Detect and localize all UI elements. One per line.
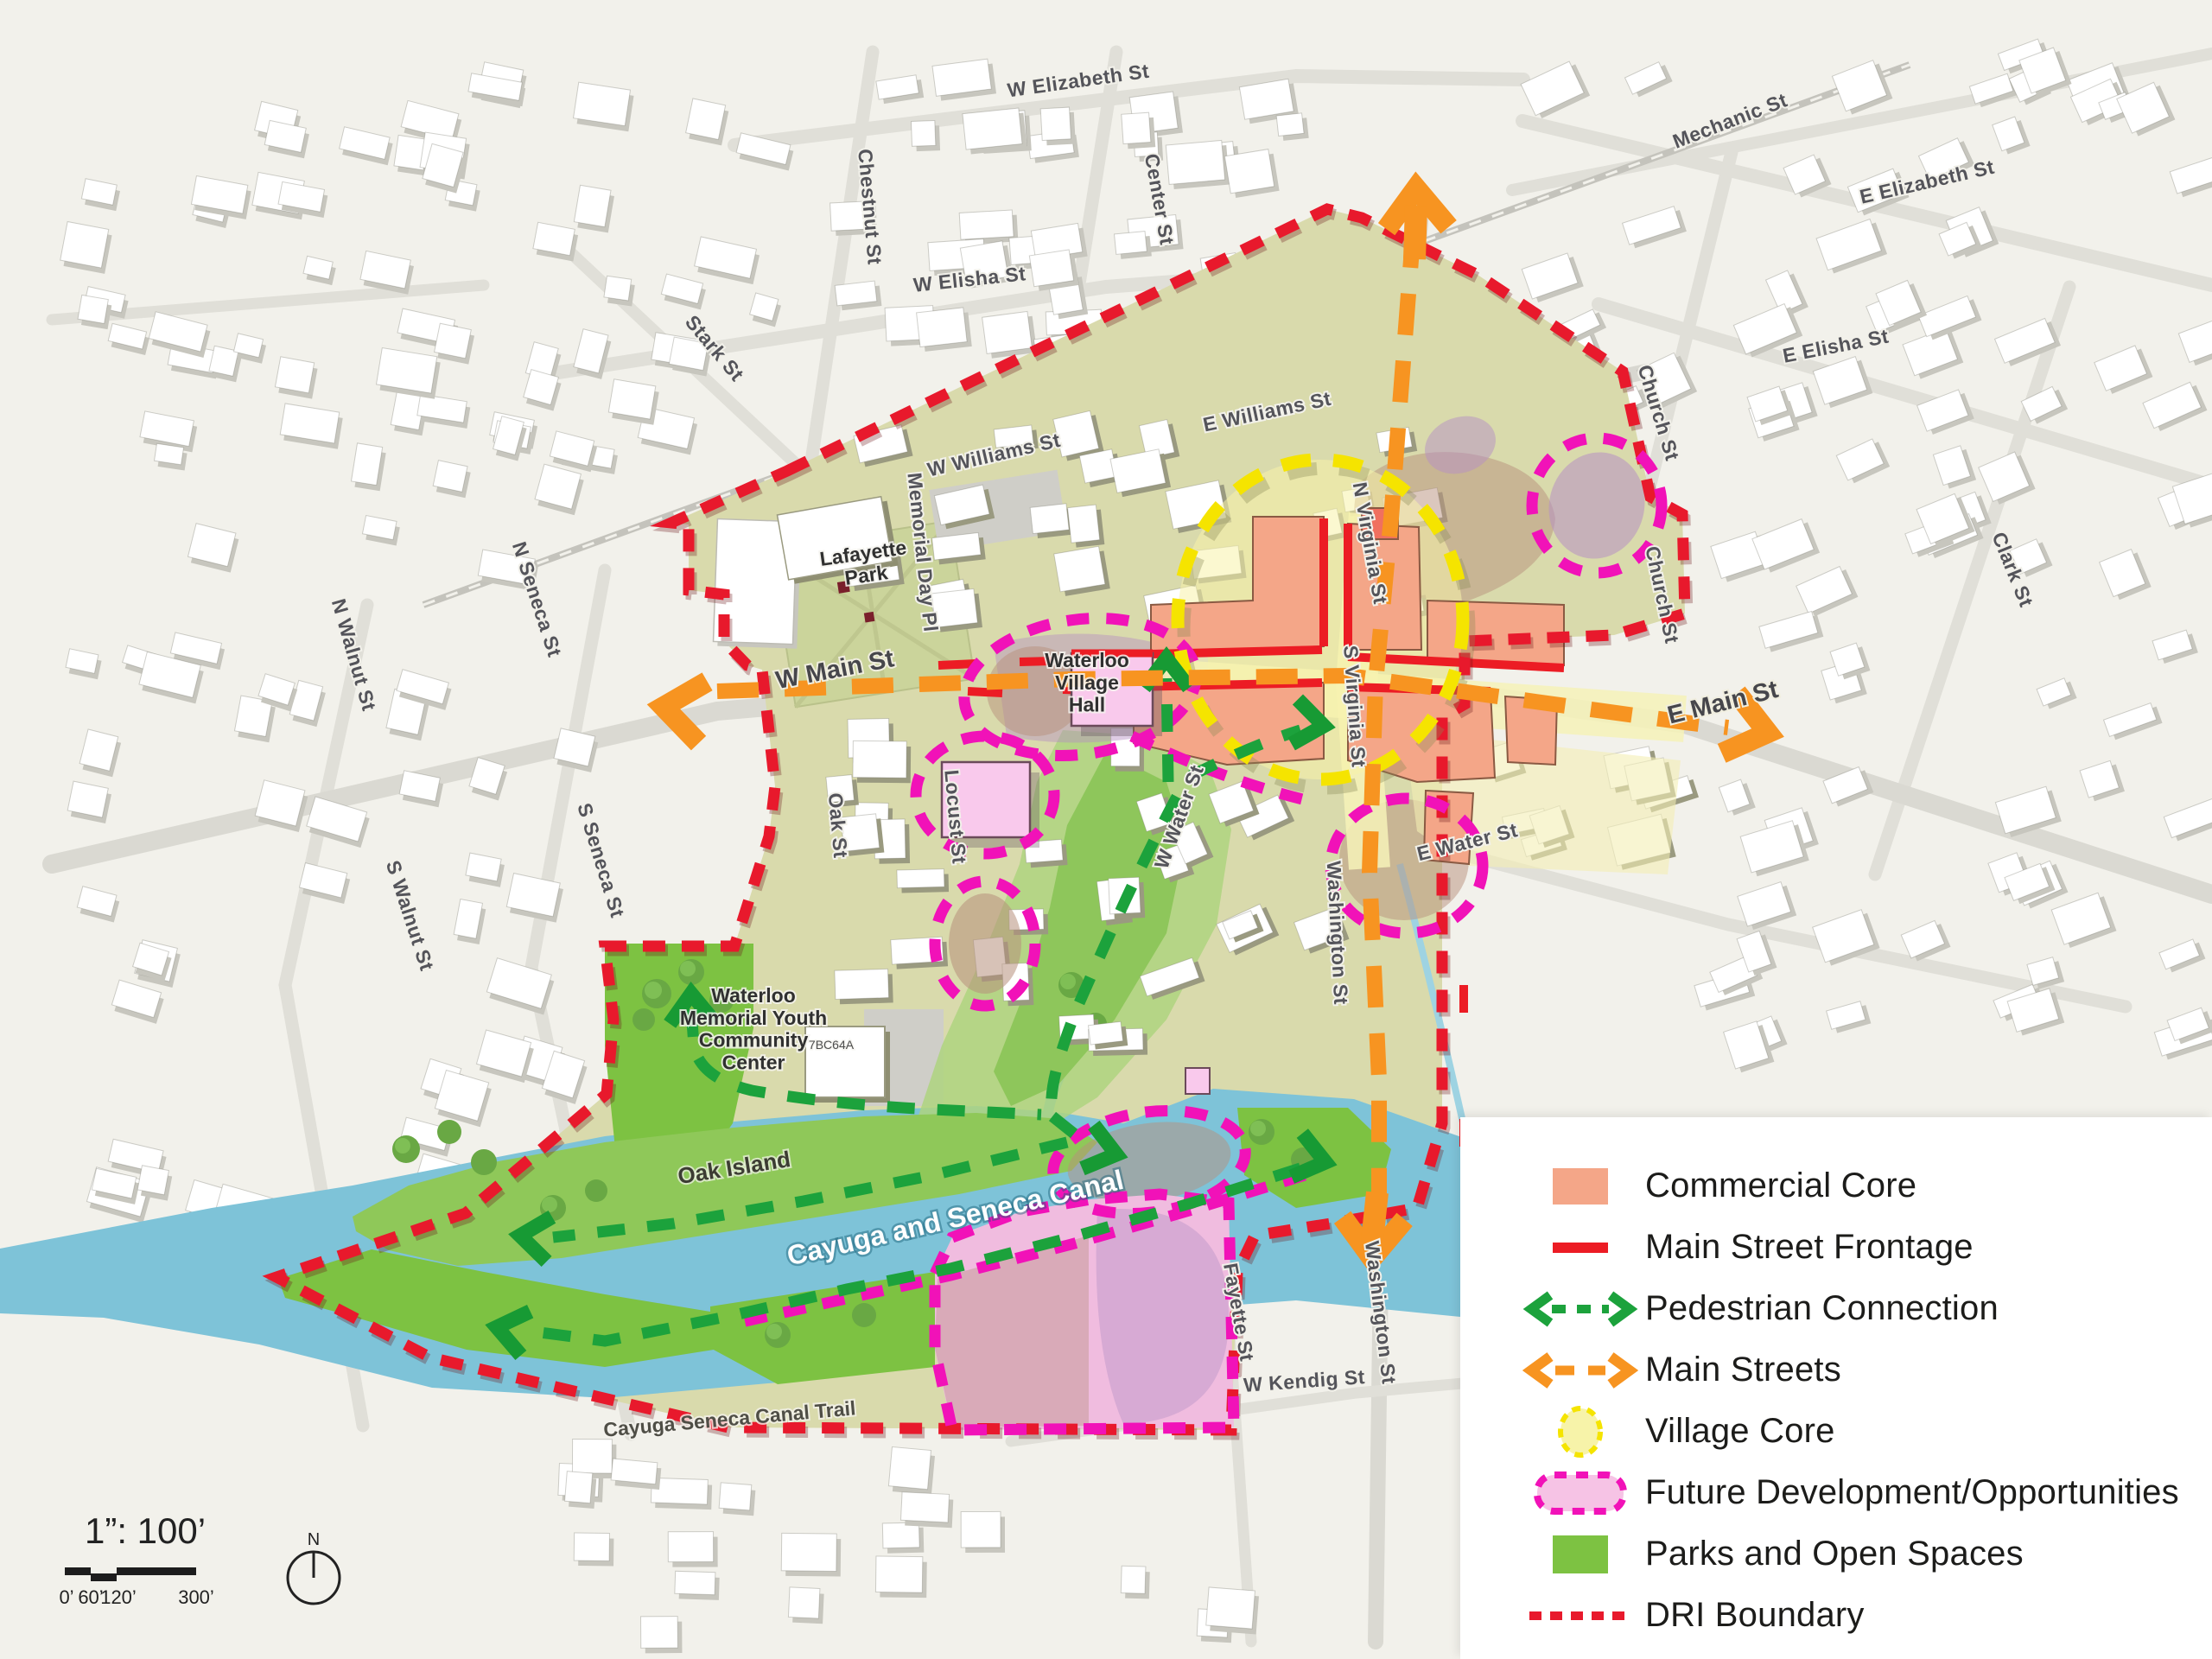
building [932,532,986,565]
legend-label: Parks and Open Spaces [1645,1535,2024,1573]
legend-label: Village Core [1645,1412,1835,1451]
building [603,276,636,306]
building [154,443,188,470]
building [675,1571,720,1600]
legend-item-parks: Parks and Open Spaces [1516,1523,2212,1585]
legend-label: Main Streets [1645,1351,1841,1389]
scale-bar: 1”: 100’ 0’ 60’ 120’ 300’ N [60,1503,432,1633]
building [1029,249,1078,291]
building [1205,1587,1259,1634]
legend-item-commercial-core: Commercial Core [1516,1155,2212,1217]
north-arrow: N [276,1529,354,1616]
main-street-arrow-swatch [1516,1351,1645,1390]
building [853,741,911,783]
building [897,869,949,893]
future-development-swatch [1516,1465,1645,1522]
building [573,185,615,232]
scale-ratio: 1”: 100’ [85,1510,206,1552]
building [641,1617,683,1654]
building [1122,112,1155,149]
building [77,295,112,329]
scale-bar-graphic [65,1567,257,1581]
legend-label: Main Street Frontage [1645,1228,1974,1267]
legend-label: DRI Boundary [1645,1596,1865,1635]
building [982,311,1038,359]
building [835,281,881,311]
building [274,357,318,399]
building [1054,546,1110,597]
legend-label: Future Development/Opportunities [1645,1473,2179,1512]
village-core-swatch [1516,1404,1645,1459]
planning-map-page: W Elizabeth StMechanic StE Elizabeth StW… [0,0,2212,1659]
legend-label: Commercial Core [1645,1166,1916,1205]
legend-item-main-street-frontage: Main Street Frontage [1516,1217,2212,1278]
legend: Commercial Core Main Street Frontage Ped… [1460,1117,2212,1659]
legend-item-future-development: Future Development/Opportunities [1516,1462,2212,1523]
building [961,1511,1005,1553]
building [684,99,729,145]
building [1040,107,1076,146]
legend-item-pedestrian-connection: Pedestrian Connection [1516,1278,2212,1339]
building [564,1471,597,1509]
building [875,1556,926,1598]
legend-label: Pedestrian Connection [1645,1289,1999,1328]
building [781,1533,841,1576]
building [900,1492,953,1528]
building [1068,505,1105,549]
scale-ticks: 0’ 60’ 120’ 300’ [65,1586,272,1609]
pedestrian-arrow-swatch [1516,1289,1645,1329]
building [607,379,659,425]
scale-tick: 300’ [178,1586,214,1609]
building [433,323,475,364]
legend-item-village-core: Village Core [1516,1401,2212,1462]
scale-tick: 120’ [100,1586,137,1609]
building [611,1459,662,1490]
building [1224,149,1279,199]
building [835,969,893,1004]
building [1166,140,1230,189]
frontage-swatch [1516,1241,1645,1255]
north-label: N [308,1530,320,1549]
building [668,1532,717,1567]
building [882,1522,924,1554]
building [788,1587,824,1624]
legend-item-dri-boundary: DRI Boundary [1516,1585,2212,1646]
legend-item-main-streets: Main Streets [1516,1339,2212,1401]
building [60,221,113,273]
building [963,108,1027,155]
building [574,1533,613,1567]
building [917,307,972,352]
commercial-core-swatch [1516,1167,1645,1205]
dri-boundary-swatch [1516,1610,1645,1622]
building [888,1446,936,1495]
building [651,1478,712,1510]
building [573,82,635,131]
place-label: 7BC64A [809,1038,855,1052]
building [719,1483,756,1516]
scale-tick: 0’ [59,1586,73,1609]
building [137,1166,173,1201]
parks-swatch [1516,1535,1645,1574]
